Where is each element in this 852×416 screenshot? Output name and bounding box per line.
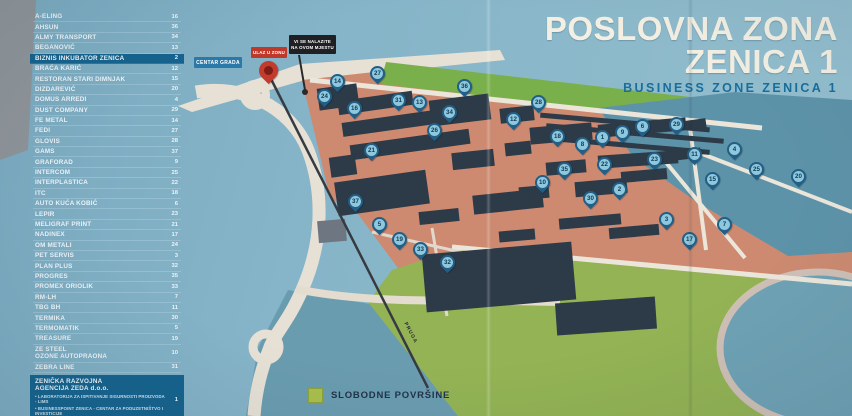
- zeda-bullet: • BUSINESSPOINT ZENICA - CENTAR ZA PODUZ…: [35, 406, 166, 416]
- legend-item-ze-steel: ZE STEELOZONE AUTOPRAONA10: [33, 345, 181, 363]
- legend-item-dust-company: DUST COMPANY29: [33, 106, 181, 116]
- legend-item-promex-oriolik: PROMEX ORIOLIK33: [33, 282, 181, 292]
- map-pin-1: 1: [591, 127, 612, 148]
- map-pin-12: 12: [502, 109, 523, 130]
- map-pin-15: 15: [701, 169, 722, 190]
- map-pin-29: 29: [665, 114, 686, 135]
- legend-item-dizdarevi: DIZDAREVIĆ20: [33, 85, 181, 95]
- map-pin-22: 22: [593, 154, 614, 175]
- legend-item-fe-metal: FE METAL14: [33, 116, 181, 126]
- map-pin-10: 10: [531, 172, 552, 193]
- legend-item-biznis-inkubator-zenica: BIZNIS INKUBATOR ZENICA2: [30, 54, 184, 64]
- legend-item-domus-arredi: DOMUS ARREDI4: [33, 95, 181, 105]
- map-pin-9: 9: [611, 122, 632, 143]
- you-are-here-line2: NA OVOM MJESTU: [291, 45, 334, 50]
- map-pin-36: 36: [453, 76, 474, 97]
- zone-title-block: POSLOVNA ZONA ZENICA 1 BUSINESS ZONE ZEN…: [545, 12, 838, 95]
- free-areas-key: SLOBODNE POVRŠINE: [308, 388, 450, 403]
- legend-item-almy-transport: ALMY TRANSPORT34: [33, 33, 181, 43]
- legend-item-progres: PROGRES35: [33, 272, 181, 282]
- map-pin-13: 13: [408, 92, 429, 113]
- zone-title-line1: POSLOVNA ZONA: [545, 12, 838, 45]
- legend-item-treasure: TREASURE19: [33, 334, 181, 344]
- map-pin-20: 20: [787, 166, 808, 187]
- legend-item-rm-lh: RM-LH7: [33, 293, 181, 303]
- zone-subtitle: BUSINESS ZONE ZENICA 1: [545, 81, 838, 95]
- map-pin-30: 30: [579, 188, 600, 209]
- legend-item-termika: TERMIKA30: [33, 313, 181, 323]
- map-pin-21: 21: [360, 140, 381, 161]
- legend-item-termomatik: TERMOMATIK5: [33, 324, 181, 334]
- map-pin-16: 16: [343, 98, 364, 119]
- free-area-label: SLOBODNE POVRŠINE: [331, 390, 450, 401]
- legend-item-zeda: ZENIČKA RAZVOJNAAGENCIJA ZEDA d.o.o.• LA…: [30, 375, 184, 416]
- label-centar-grada: CENTAR GRADA: [194, 57, 242, 68]
- free-area-swatch-icon: [308, 388, 323, 403]
- legend-item-lepir: LEPIR23: [33, 209, 181, 219]
- map-pin-3: 3: [655, 209, 676, 230]
- legend-item-meligraf-print: MELIGRAF PRINT21: [33, 220, 181, 230]
- map-pin-5: 5: [368, 214, 389, 235]
- map-pin-35: 35: [553, 159, 574, 180]
- legend-item-zebra-line: ZEBRA LINE31: [33, 363, 181, 373]
- legend-item-glovis: GLOVIS28: [33, 137, 181, 147]
- legend-item-om-metali: OM METALI24: [33, 241, 181, 251]
- legend-item-itc: ITC18: [33, 189, 181, 199]
- map-pin-26: 26: [423, 120, 444, 141]
- legend-item-pet-servis: PET SERVIS3: [33, 251, 181, 261]
- legend-item-fedi: FEDI27: [33, 126, 181, 136]
- map-pin-28: 28: [527, 92, 548, 113]
- map-pin-14: 14: [326, 71, 347, 92]
- legend-item-graforad: GRAFORAD9: [33, 157, 181, 167]
- map-pin-37: 37: [344, 191, 365, 212]
- map-pin-33: 33: [409, 239, 430, 260]
- legend-item-tbg-bh: TBG BH11: [33, 303, 181, 313]
- zone-title-line2: ZENICA 1: [545, 45, 838, 78]
- map-pin-24: 24: [313, 86, 334, 107]
- map-pin-2: 2: [608, 179, 629, 200]
- legend-item-a-eling: A-ELING16: [33, 12, 181, 22]
- legend-item-bra-a-kari: BRAĆA KARIĆ12: [33, 64, 181, 74]
- legend-item-interplastica: INTERPLASTICA22: [33, 178, 181, 188]
- map-pin-19: 19: [388, 229, 409, 250]
- legend-item-restoran-stari-dimnjak: RESTORAN STARI DIMNJAK15: [33, 74, 181, 84]
- map-pin-32: 32: [436, 252, 457, 273]
- legend-item-ahsun: AHSUN36: [33, 22, 181, 32]
- legend-item-gams: GAMS37: [33, 147, 181, 157]
- legend-item-nadinex: NADINEX17: [33, 230, 181, 240]
- map-pin-34: 34: [438, 102, 459, 123]
- label-you-are-here: VI SE NALAZITE NA OVOM MJESTU: [289, 35, 336, 54]
- map-pin-18: 18: [546, 126, 567, 147]
- map-pin-23: 23: [643, 149, 664, 170]
- map-pin-27: 27: [366, 63, 387, 84]
- map-pin-6: 6: [631, 116, 652, 137]
- map-pin-8: 8: [571, 134, 592, 155]
- legend-list: A-ELING16AHSUN36ALMY TRANSPORT34BEGANOVI…: [33, 12, 181, 416]
- legend-item-plan-plus: PLAN PLUS32: [33, 261, 181, 271]
- map-pin-17: 17: [678, 229, 699, 250]
- label-ulaz-u-zonu: ULAZ U ZONU: [251, 47, 287, 58]
- map-pin-31: 31: [387, 90, 408, 111]
- map-pin-11: 11: [683, 144, 704, 165]
- legend-item-auto-ku-a-kobi: AUTO KUĆA KOBIĆ6: [33, 199, 181, 209]
- map-pin-4: 4: [723, 139, 744, 160]
- billboard-photo: POSLOVNA ZONA ZENICA 1 BUSINESS ZONE ZEN…: [0, 0, 852, 416]
- map-pin-25: 25: [745, 159, 766, 180]
- zeda-bullet: • LABORATORIJA ZA ISPITIVANJE SIGURNOSTI…: [35, 394, 166, 404]
- legend-item-intercom: INTERCOM25: [33, 168, 181, 178]
- map-pin-7: 7: [713, 214, 734, 235]
- legend-item-beganovi: BEGANOVIĆ13: [33, 43, 181, 53]
